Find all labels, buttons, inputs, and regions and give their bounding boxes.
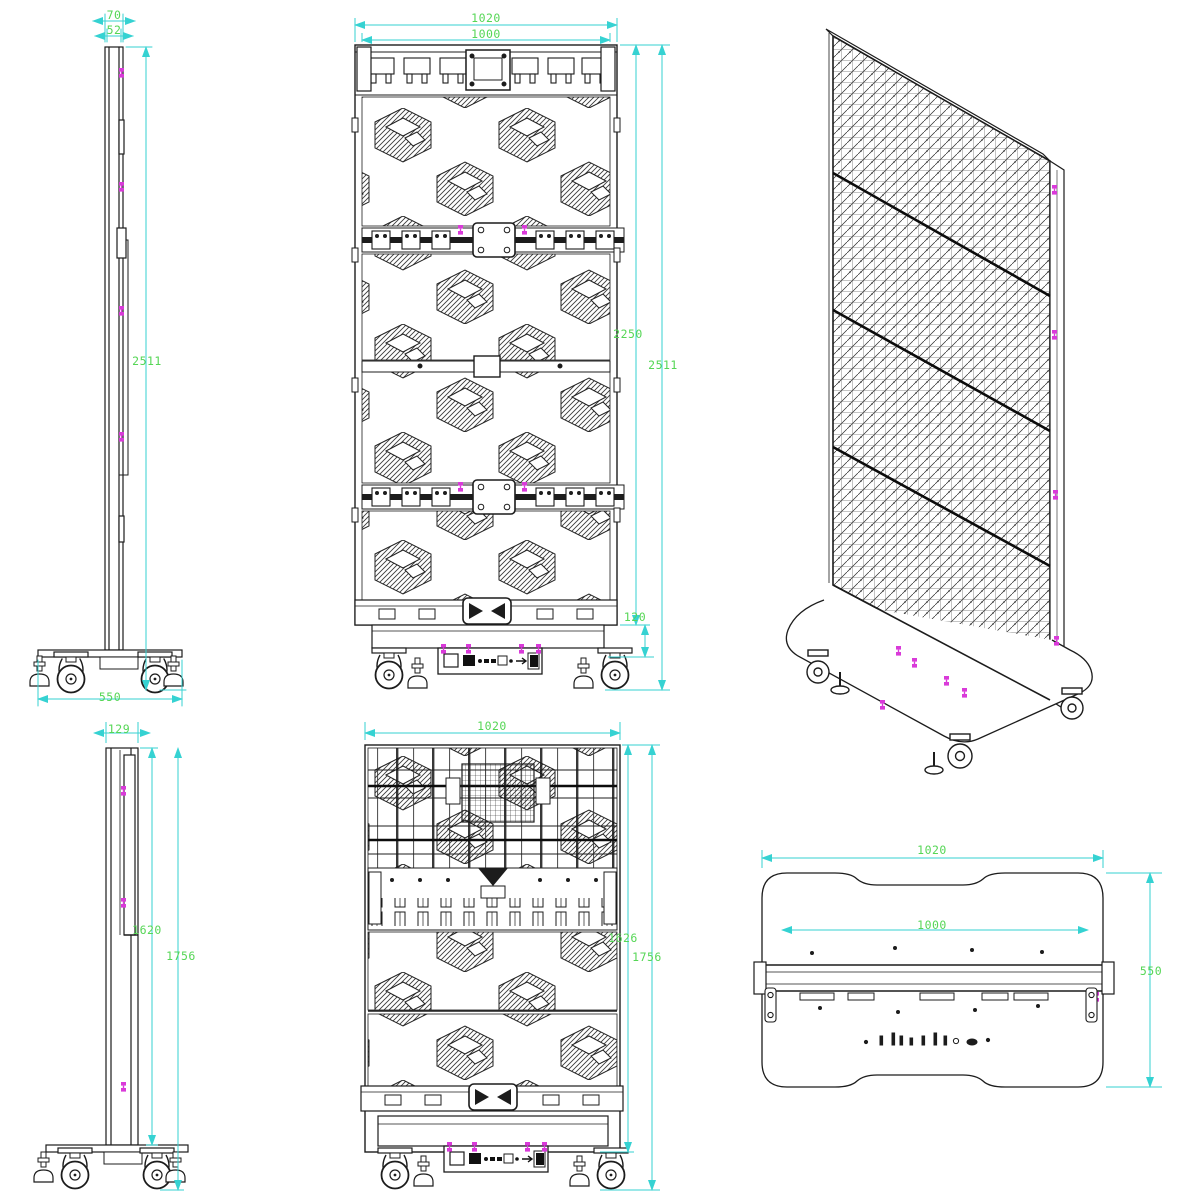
bottom-band — [361, 1084, 623, 1111]
cube-pattern-rows — [362, 97, 610, 600]
cad-drawing-sheet: 70 52 2511 550 1020 1000 2250 2511 120 1… — [0, 0, 1200, 1200]
dim-label-front-top-2511: 2511 — [640, 359, 686, 371]
dim-label-bottom-1000: 1000 — [898, 919, 966, 931]
front-view-bottom — [361, 722, 660, 1190]
dim-label-side-top-70: 70 — [98, 9, 130, 21]
cad-linework — [0, 0, 1200, 1200]
front-view-top — [352, 18, 670, 690]
base-assembly — [34, 1145, 188, 1189]
io-panel — [444, 1146, 548, 1172]
dim-label-front-bottom-1020: 1020 — [460, 720, 524, 732]
seam-band-2 — [362, 480, 624, 514]
dim-label-front-bottom-1756: 1756 — [624, 951, 670, 963]
bracket-band — [368, 868, 617, 930]
panel-outline — [105, 47, 128, 650]
bottom-band — [355, 598, 617, 625]
dim-label-side-bottom-129: 129 — [97, 723, 141, 735]
dim-label-front-top-120: 120 — [616, 611, 654, 623]
dim-label-bottom-550: 550 — [1128, 965, 1174, 977]
base-assembly — [30, 650, 183, 693]
isometric-view — [786, 29, 1092, 774]
io-panel — [438, 648, 542, 674]
framed-upper-section — [368, 748, 617, 868]
dim-label-side-top-52: 52 — [98, 24, 130, 36]
cube-pattern-rows — [368, 932, 617, 1086]
bottom-view — [754, 850, 1162, 1087]
dim-label-front-top-2250: 2250 — [605, 328, 651, 340]
base-section — [372, 625, 632, 689]
dim-label-front-bottom-1626: 1626 — [600, 932, 646, 944]
dim-label-front-top-1020: 1020 — [455, 12, 517, 24]
dim-label-side-top-550: 550 — [88, 691, 132, 703]
dim-label-bottom-1020: 1020 — [898, 844, 966, 856]
dim-label-side-bottom-1756: 1756 — [158, 950, 204, 962]
dim-label-front-top-1000: 1000 — [455, 28, 517, 40]
seam-band-1 — [362, 223, 624, 257]
panel-back-texture — [833, 36, 1050, 700]
dim-label-side-bottom-1620: 1620 — [124, 924, 170, 936]
dim-label-side-top-2511: 2511 — [126, 355, 168, 367]
